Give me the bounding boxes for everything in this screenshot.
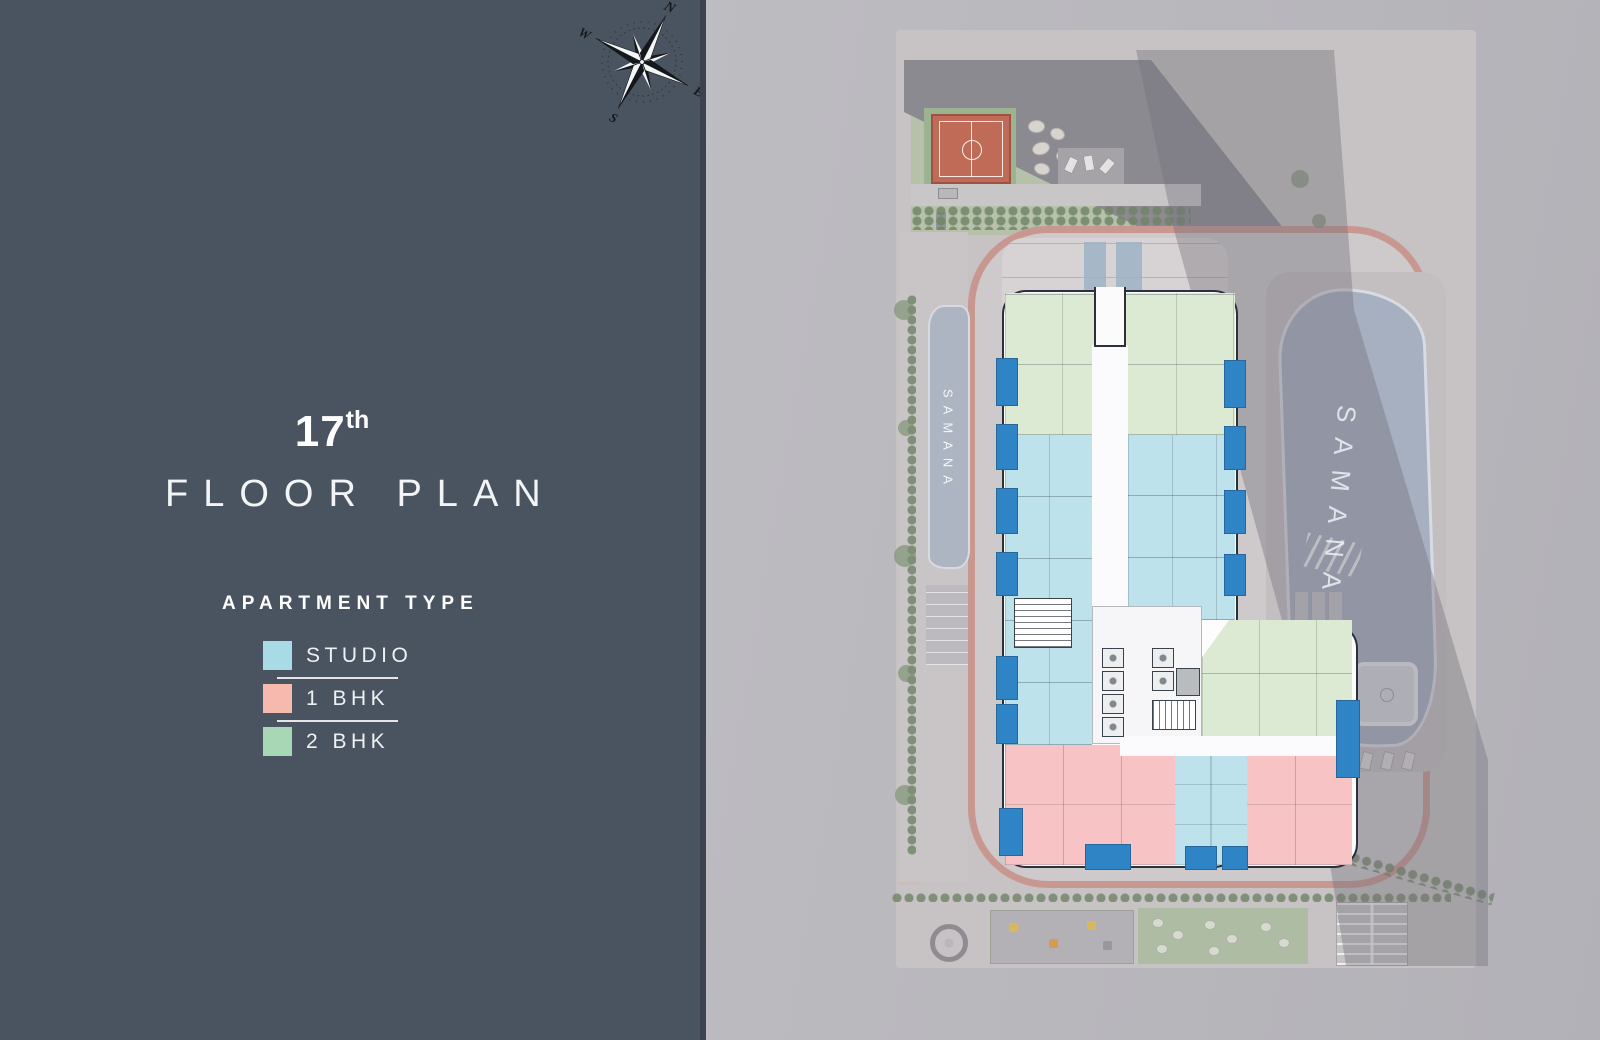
balcony-tab: [999, 808, 1023, 856]
river-side-parking: [926, 585, 968, 665]
central-corridor: [1092, 345, 1128, 637]
two-bhk-color-swatch: [263, 727, 292, 756]
balcony-tab: [1185, 846, 1217, 870]
hedge-strip: [906, 295, 916, 855]
river-brand-label: SAMANA: [930, 350, 966, 530]
lawn-seat: [1204, 920, 1216, 930]
tree: [894, 300, 914, 320]
lawn-seat: [1226, 934, 1238, 944]
garden-lounger: [1083, 154, 1096, 171]
balcony-tab: [1224, 426, 1246, 470]
studio-color-swatch: [263, 641, 292, 670]
studio-zone-east: [1128, 435, 1235, 620]
tree: [898, 420, 914, 436]
podium-skylight: [1116, 242, 1142, 292]
balcony-tab: [1224, 490, 1246, 534]
elevator: [1102, 694, 1124, 714]
elevator: [1102, 671, 1124, 691]
floor-ordinal-suffix: th: [346, 406, 370, 434]
two-bhk-zone-east: [1202, 620, 1352, 744]
elevator: [1102, 717, 1124, 737]
floor-number: 17th: [150, 406, 514, 457]
south-corridor: [1120, 736, 1336, 756]
balcony-tab: [1224, 554, 1246, 596]
seating-area: [1058, 148, 1124, 184]
one-bhk-color-swatch: [263, 684, 292, 713]
lawn-seat: [1260, 922, 1272, 932]
page-title: 17th FLOOR PLAN: [150, 406, 514, 516]
balcony-tab: [1336, 700, 1360, 778]
legend-item-studio: STUDIO: [263, 641, 412, 670]
stairwell-core: [1152, 700, 1196, 730]
garden-lounger: [1063, 156, 1079, 175]
apartment-type-heading: APARTMENT TYPE: [222, 593, 479, 615]
fountain-circle: [930, 924, 968, 962]
balcony-tab: [996, 704, 1018, 744]
compass-rose-icon: N E S W: [567, 0, 717, 137]
balcony-tab: [996, 424, 1018, 470]
site-plan: SAMANA: [706, 0, 1600, 1040]
balcony-tab: [996, 656, 1018, 700]
legend-label: STUDIO: [306, 644, 412, 668]
tree: [895, 785, 915, 805]
parking-sign: [938, 188, 958, 199]
play-equipment: [1087, 921, 1096, 930]
stairwell-west: [1014, 598, 1072, 648]
legend-divider: [277, 720, 398, 722]
legend-item-1bhk: 1 BHK: [263, 684, 389, 713]
basketball-court: [931, 114, 1011, 184]
compass-north-label: N: [661, 0, 679, 17]
court-center-circle: [962, 140, 982, 160]
balcony-tab: [1085, 844, 1131, 870]
tree: [894, 545, 916, 567]
lawn-seat: [1278, 938, 1290, 948]
seating-lawn: [1138, 908, 1308, 964]
podium-skylight: [1084, 242, 1106, 292]
compass-south-label: S: [607, 109, 620, 126]
service-shaft: [1176, 668, 1200, 696]
legend-divider: [277, 677, 398, 679]
play-equipment: [1009, 923, 1018, 932]
balcony-tab: [996, 358, 1018, 406]
lawn-seat: [1156, 944, 1168, 954]
garden-lounger: [1098, 157, 1116, 176]
balcony-tab: [1224, 360, 1246, 408]
lawn-seat: [1152, 918, 1164, 928]
play-equipment: [1103, 941, 1112, 950]
balcony-tab: [996, 488, 1018, 534]
tree: [898, 665, 915, 682]
balcony-tab: [1222, 846, 1248, 870]
legend-item-2bhk: 2 BHK: [263, 727, 389, 756]
info-panel: N E S W 17th FLOOR PLAN APARTMENT TYPE S…: [0, 0, 700, 1040]
legend-label: 2 BHK: [306, 730, 389, 754]
elevator: [1152, 671, 1174, 691]
floor-plan-page: N E S W 17th FLOOR PLAN APARTMENT TYPE S…: [0, 0, 1600, 1040]
elevator: [1152, 648, 1174, 668]
legend-label: 1 BHK: [306, 687, 389, 711]
playground: [990, 910, 1134, 964]
roof-notch: [1094, 287, 1126, 347]
compass-west-label: W: [576, 24, 594, 43]
garden-rock: [1028, 120, 1045, 133]
lawn-seat: [1208, 946, 1220, 956]
floor-plan-title: FLOOR PLAN: [150, 473, 514, 516]
studio-zone-west: [1005, 435, 1092, 745]
balcony-tab: [996, 552, 1018, 596]
play-equipment: [1049, 939, 1058, 948]
elevator: [1102, 648, 1124, 668]
lawn-seat: [1172, 930, 1184, 940]
